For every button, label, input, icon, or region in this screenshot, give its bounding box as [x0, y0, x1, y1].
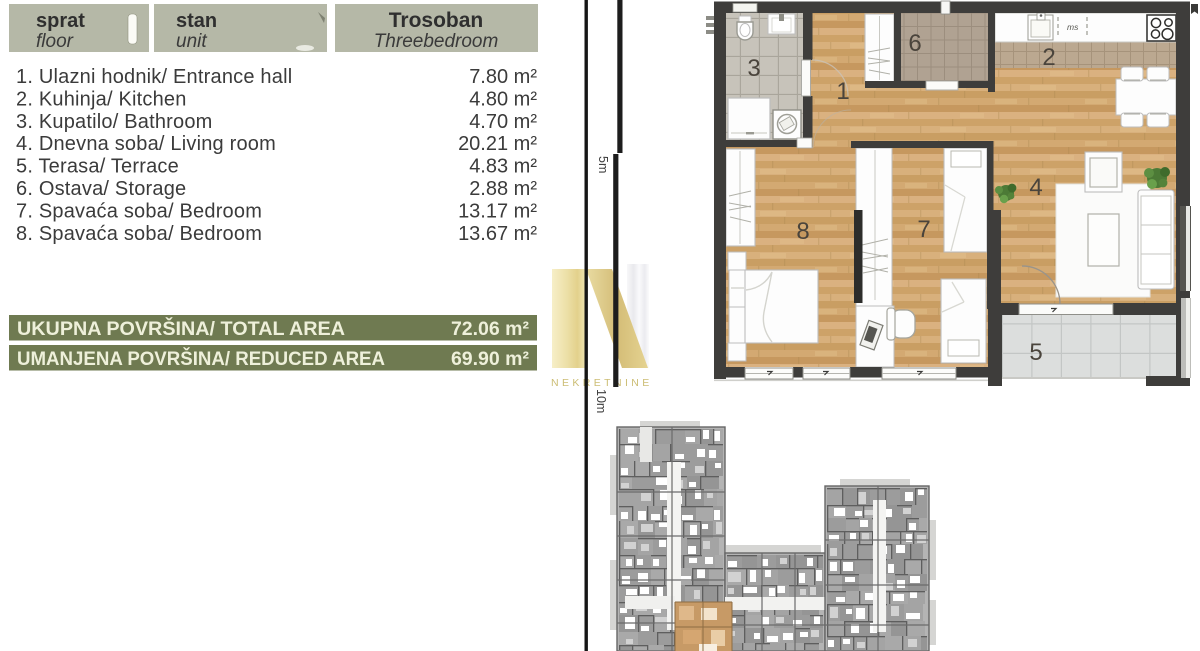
svg-text:8: 8	[796, 218, 809, 245]
svg-text:2. Kuhinja/ Kitchen: 2. Kuhinja/ Kitchen	[16, 88, 187, 110]
svg-text:ms: ms	[1067, 22, 1079, 32]
svg-text:stan: stan	[176, 10, 217, 32]
svg-text:5. Terasa/ Terrace: 5. Terasa/ Terrace	[16, 156, 179, 178]
svg-text:4.70 m²: 4.70 m²	[469, 111, 537, 133]
svg-text:3. Kupatilo/ Bathroom: 3. Kupatilo/ Bathroom	[16, 111, 213, 133]
svg-text:72.06 m²: 72.06 m²	[451, 318, 530, 340]
svg-text:6. Ostava/ Storage: 6. Ostava/ Storage	[16, 178, 186, 200]
svg-text:7.80 m²: 7.80 m²	[469, 66, 537, 88]
svg-text:UKUPNA POVRŠINA/ TOTAL AREA: UKUPNA POVRŠINA/ TOTAL AREA	[17, 316, 345, 340]
svg-text:13.17 m²: 13.17 m²	[458, 200, 537, 222]
svg-text:13.67 m²: 13.67 m²	[458, 223, 537, 245]
svg-text:5m: 5m	[596, 156, 610, 173]
svg-text:20.21 m²: 20.21 m²	[458, 133, 537, 155]
svg-text:5: 5	[1029, 339, 1042, 366]
svg-text:8. Spavaća soba/ Bedroom: 8. Spavaća soba/ Bedroom	[16, 223, 262, 245]
svg-text:4: 4	[1029, 174, 1042, 201]
svg-text:UMANJENA POVRŠINA/ REDUCED ARE: UMANJENA POVRŠINA/ REDUCED AREA	[17, 346, 385, 370]
svg-text:3: 3	[747, 55, 760, 82]
svg-text:7. Spavaća soba/ Bedroom: 7. Spavaća soba/ Bedroom	[16, 200, 262, 222]
svg-text:7: 7	[917, 216, 930, 243]
svg-text:1. Ulazni hodnik/ Entrance hal: 1. Ulazni hodnik/ Entrance hall	[16, 66, 292, 88]
svg-text:2.88 m²: 2.88 m²	[469, 178, 537, 200]
svg-text:69.90 m²: 69.90 m²	[451, 348, 530, 370]
svg-text:NEKRETNINE: NEKRETNINE	[551, 377, 653, 389]
svg-text:sprat: sprat	[36, 10, 85, 32]
svg-text:1: 1	[836, 78, 849, 105]
svg-text:Trosoban: Trosoban	[389, 9, 484, 32]
svg-text:4.83 m²: 4.83 m²	[469, 156, 537, 178]
svg-text:4.80 m²: 4.80 m²	[469, 88, 537, 110]
svg-text:floor: floor	[36, 31, 74, 52]
svg-text:6: 6	[908, 30, 921, 57]
svg-text:Threebedroom: Threebedroom	[374, 31, 499, 52]
svg-text:4. Dnevna soba/ Living room: 4. Dnevna soba/ Living room	[16, 133, 276, 155]
svg-text:unit: unit	[176, 31, 207, 52]
svg-text:2: 2	[1042, 44, 1055, 71]
svg-text:10m: 10m	[594, 389, 608, 413]
